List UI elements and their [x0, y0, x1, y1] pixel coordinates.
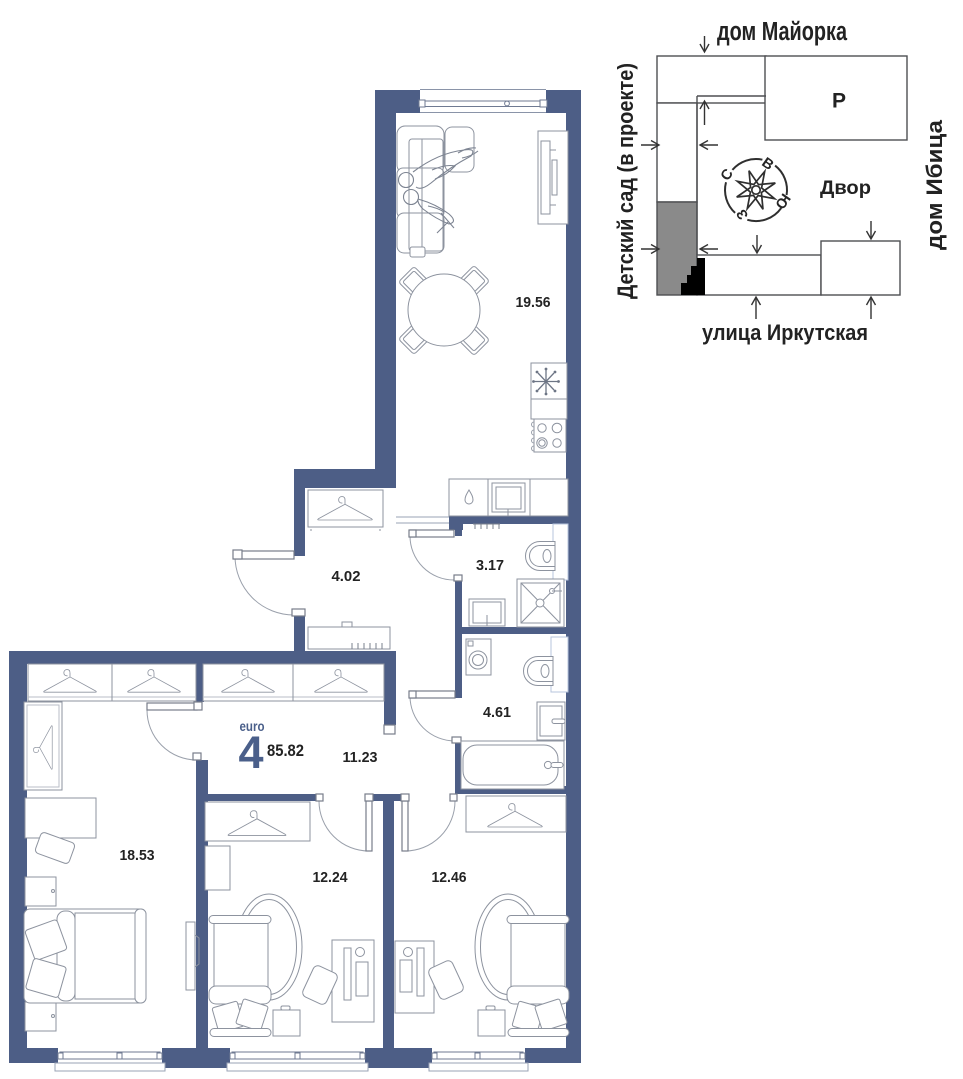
svg-text:Р: Р — [832, 90, 846, 113]
svg-text:Детский сад (в проекте): Детский сад (в проекте) — [613, 63, 638, 299]
svg-text:3.17: 3.17 — [476, 557, 504, 574]
svg-text:дом Ибица: дом Ибица — [922, 119, 947, 250]
svg-text:4: 4 — [238, 727, 263, 778]
svg-text:4.61: 4.61 — [483, 704, 511, 721]
svg-text:19.56: 19.56 — [516, 294, 551, 311]
svg-text:12.24: 12.24 — [313, 869, 349, 886]
svg-text:12.46: 12.46 — [432, 869, 467, 886]
svg-text:4.02: 4.02 — [332, 568, 361, 585]
svg-text:18.53: 18.53 — [120, 847, 155, 864]
svg-text:85.82: 85.82 — [267, 742, 304, 760]
svg-text:улица Иркутская: улица Иркутская — [702, 320, 868, 345]
svg-text:11.23: 11.23 — [343, 749, 378, 766]
svg-text:дом Майорка: дом Майорка — [717, 18, 848, 46]
svg-text:Двор: Двор — [820, 177, 871, 199]
